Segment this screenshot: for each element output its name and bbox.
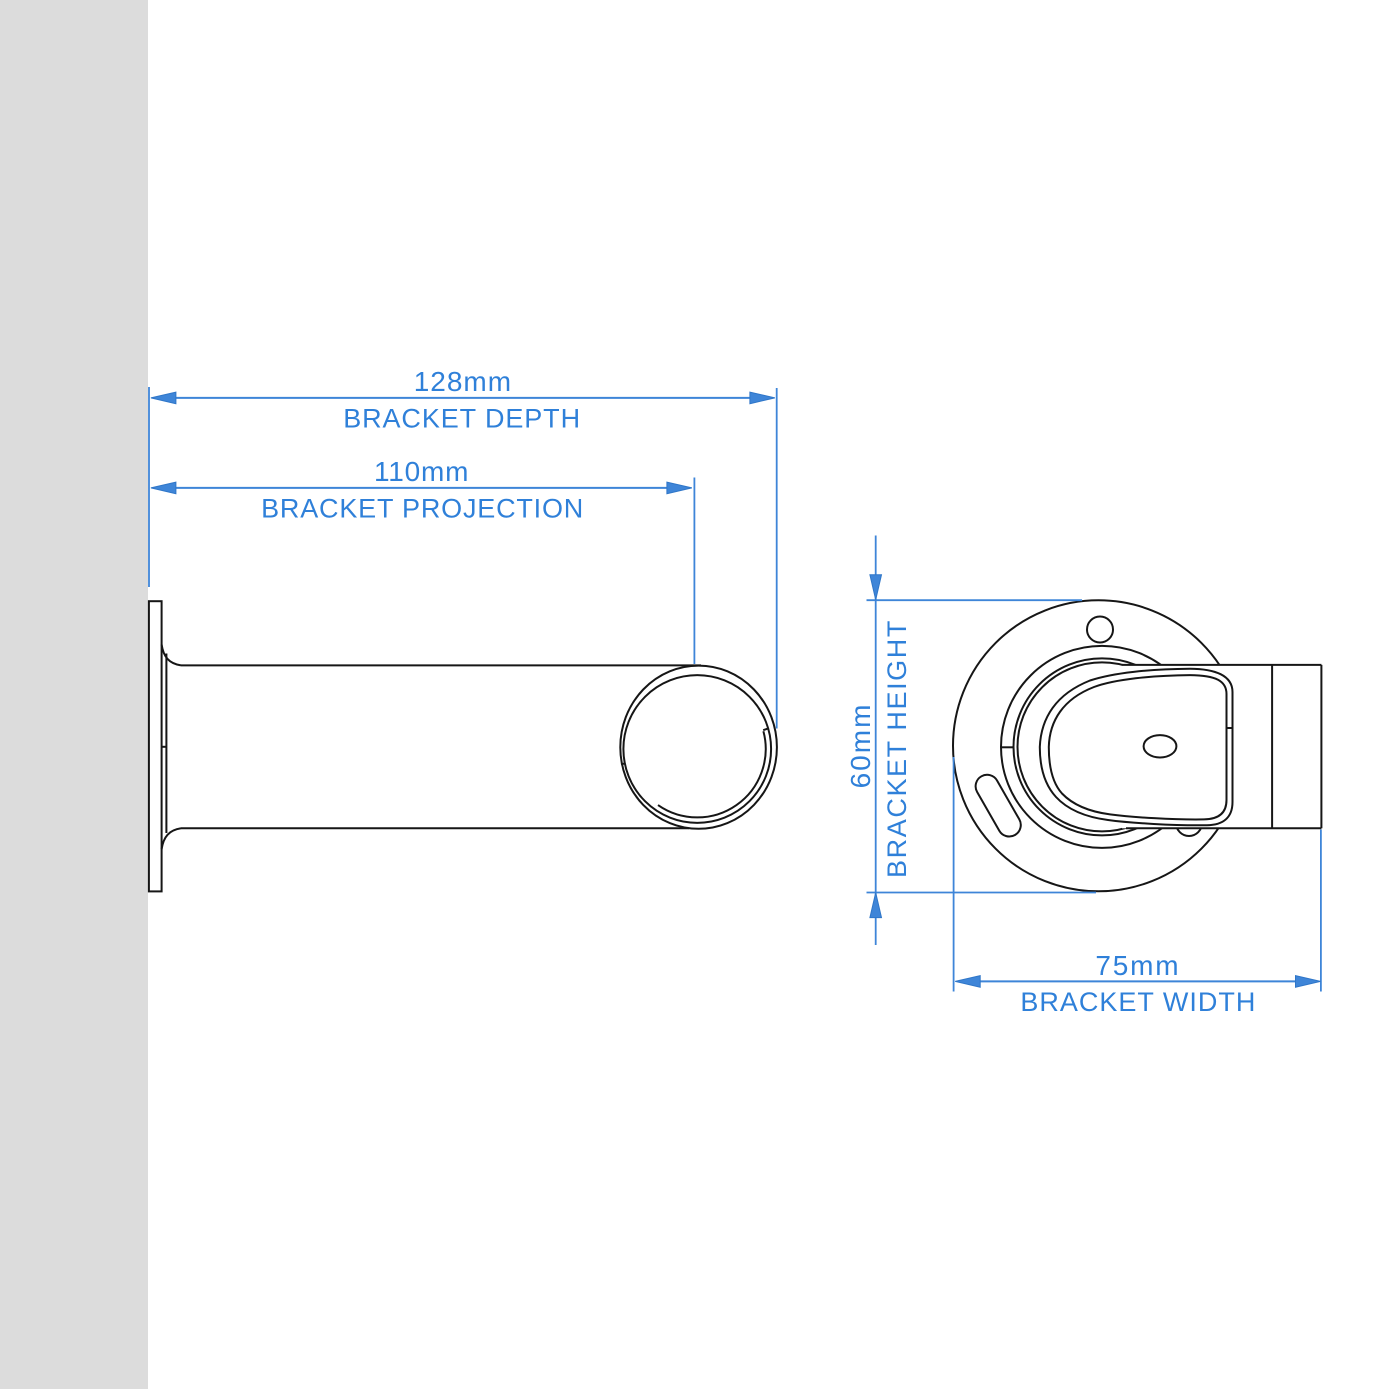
svg-text:BRACKET HEIGHT: BRACKET HEIGHT	[882, 619, 912, 878]
svg-text:75mm: 75mm	[1095, 950, 1180, 981]
svg-text:60mm: 60mm	[845, 703, 876, 789]
svg-text:BRACKET DEPTH: BRACKET DEPTH	[343, 403, 581, 433]
svg-text:BRACKET PROJECTION: BRACKET PROJECTION	[261, 493, 584, 523]
svg-text:110mm: 110mm	[374, 456, 469, 487]
svg-text:BRACKET WIDTH: BRACKET WIDTH	[1020, 987, 1256, 1017]
svg-text:128mm: 128mm	[414, 366, 512, 397]
